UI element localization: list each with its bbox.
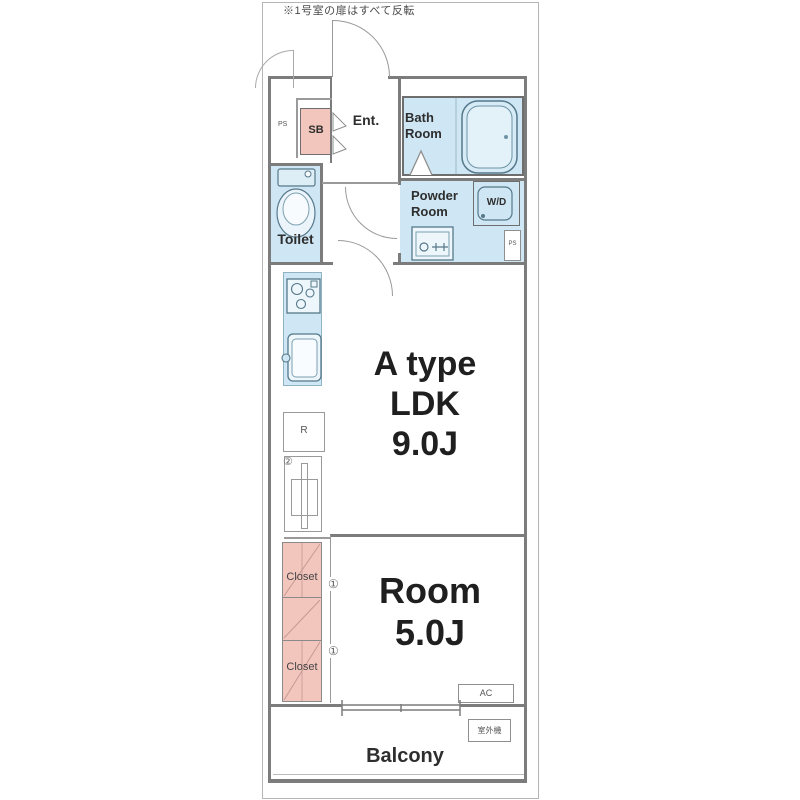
balcony-label: Balcony [330, 744, 480, 769]
door-mark-1-lower: ① [328, 644, 339, 658]
kitchen-sink-icon [282, 334, 321, 381]
ldk-label: A type LDK 9.0J [340, 344, 510, 464]
floorplan-canvas: ※1号室の扉はすべて反転 [0, 0, 800, 800]
bath-room-label: Bath Room [405, 110, 442, 143]
pipe-space-left-label: PS [278, 121, 287, 130]
door-mark-1-upper: ① [328, 577, 339, 591]
closet-upper-label: Closet [282, 571, 322, 585]
stove-icon [287, 279, 320, 313]
entrance-label: Ent. [336, 112, 396, 130]
bathtub-icon [456, 98, 517, 174]
door-mark-2: ② [283, 455, 293, 468]
shoe-box-label: SB [300, 124, 332, 138]
ac-label: AC [458, 688, 514, 699]
balcony-window-icon [342, 700, 460, 716]
bath-folding-door-icon [410, 151, 432, 175]
toilet-label: Toilet [271, 231, 320, 249]
bedroom-label: Room 5.0J [340, 570, 520, 654]
powder-room-label: Powder Room [411, 188, 458, 221]
refrigerator-label: R [283, 425, 325, 438]
toilet-icon [277, 169, 315, 237]
pipe-space-right-label: PS [504, 241, 521, 249]
closet-lower-label: Closet [282, 661, 322, 675]
washer-dryer-label: W/D [473, 197, 520, 210]
outdoor-unit-label: 室外機 [468, 726, 511, 736]
closet-door-lines [284, 543, 320, 701]
vanity-sink-icon [412, 227, 453, 260]
